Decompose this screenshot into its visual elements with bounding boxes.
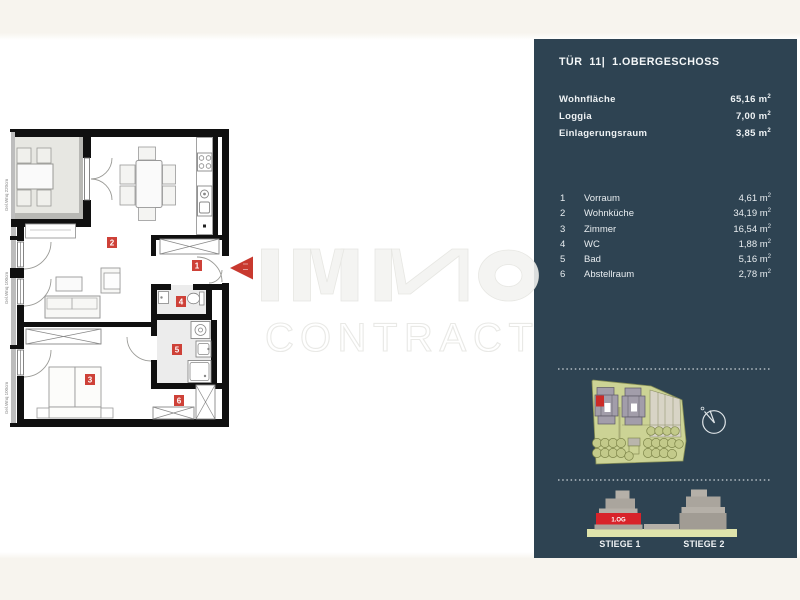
svg-text:CONTRACT: CONTRACT — [265, 316, 533, 360]
